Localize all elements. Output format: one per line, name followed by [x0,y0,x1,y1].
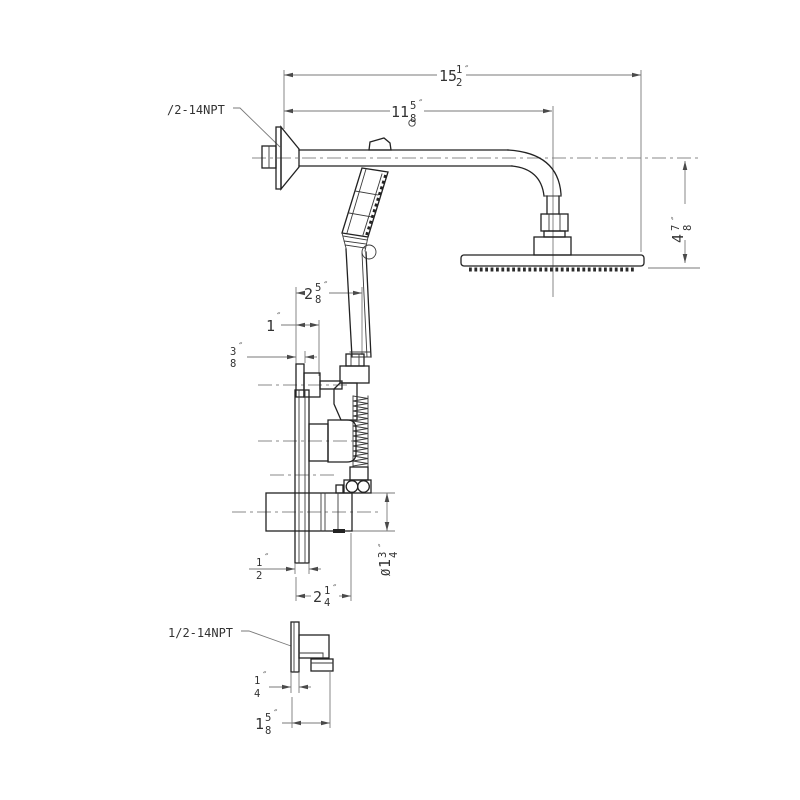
svg-text:4: 4 [388,552,400,558]
svg-text:15: 15 [439,67,457,85]
svg-text:1: 1 [324,585,330,597]
dim-knob-plate: 3 8 ″ [230,342,243,370]
arm-thread-label: /2-14NPT [167,103,225,117]
svg-text:″: ″ [262,671,267,681]
svg-text:1: 1 [456,64,462,76]
valve-wall-plate [295,390,309,563]
technical-drawing: /2-14NPT 1/2-14NPT 15 1 2 ″ 11 5 8 ″ 4 7… [0,0,800,800]
cartridge-sleeve [309,424,328,461]
svg-text:″: ″ [323,281,328,291]
svg-text:″: ″ [264,553,269,563]
leader-arm-thread [233,108,280,147]
annotations: /2-14NPT 1/2-14NPT 15 1 2 ″ 11 5 8 ″ 4 7… [167,64,694,737]
svg-text:8: 8 [265,725,271,737]
diverter-knob-face [296,364,304,397]
svg-text:2: 2 [456,77,462,89]
wall-elbow-detail [291,622,333,672]
svg-text:1: 1 [376,559,394,568]
elbow-outlet-foot [311,659,333,671]
leader-elbow-thread [241,631,291,646]
svg-text:″: ″ [378,543,388,548]
svg-text:″: ″ [332,584,337,594]
wand-handle-left [346,249,352,357]
head-mount [534,237,571,255]
svg-text:″: ″ [276,312,281,322]
svg-text:1: 1 [254,675,260,687]
hose-nut-right [358,481,370,493]
svg-text:7: 7 [670,225,682,231]
svg-text:4: 4 [254,688,260,700]
svg-text:1: 1 [266,317,275,335]
dim-head-drop: 4 7 8 ″ [669,216,694,243]
centerlines [232,106,700,512]
rain-shower-head [461,214,644,270]
svg-text:8: 8 [682,225,694,231]
svg-text:″: ″ [238,342,243,352]
svg-text:8: 8 [410,113,416,125]
hang-loop [362,245,376,259]
wand-cradle [369,138,391,150]
svg-text:8: 8 [230,358,236,370]
svg-text:1: 1 [256,557,262,569]
svg-text:5: 5 [410,100,416,112]
svg-text:2: 2 [313,588,322,606]
dim-valve-projection: 2 1 4 ″ [313,584,337,609]
diverter-body [340,366,369,383]
svg-text:8: 8 [315,294,321,306]
head-disc [461,255,644,266]
svg-text:″: ″ [671,216,681,221]
head-collar [544,231,565,237]
elbow-inner [512,166,544,196]
svg-text:11: 11 [391,103,409,121]
dim-elbow-plate: 1 4 ″ [254,671,267,700]
hose-clip [336,485,343,493]
svg-text:5: 5 [265,712,271,724]
wand-spray-face [367,175,386,235]
svg-text:4: 4 [324,597,330,609]
head-nut [541,214,568,231]
hose-outlet-nut [346,354,364,366]
dim-elbow-projection: 1 5 8 ″ [255,709,278,737]
dimension-lines [233,70,700,728]
elbow-wall-plate [291,622,299,672]
svg-text:″: ″ [273,709,278,719]
hose-end-fitting [350,467,368,480]
wand-handle-right [366,252,371,357]
svg-text:3: 3 [230,346,236,358]
svg-text:″: ″ [464,65,469,75]
hose-nut-left [346,481,358,493]
dim-plate-thickness: 1 2 ″ [256,553,269,582]
dim-arm-length: 11 5 8 ″ [391,99,423,125]
svg-text:4: 4 [669,234,687,243]
dim-valve-bore: Ø 1 3 4 ″ [376,543,400,576]
valve-port-mark [333,529,345,533]
dim-wand-offset: 2 5 8 ″ [304,281,328,306]
svg-text:2: 2 [256,570,262,582]
elbow-body [299,635,329,658]
svg-text:1: 1 [255,715,264,733]
shower-arm [262,127,561,214]
handheld-shower [342,120,415,357]
drawing-canvas: /2-14NPT 1/2-14NPT 15 1 2 ″ 11 5 8 ″ 4 7… [0,0,800,800]
svg-text:″: ″ [418,99,423,109]
dim-knob-projection: 1 ″ [266,312,281,335]
elbow-thread-label: 1/2-14NPT [168,626,233,640]
dim-overall-width: 15 1 2 ″ [439,64,469,89]
svg-text:5: 5 [315,282,321,294]
svg-text:2: 2 [304,285,313,303]
svg-text:Ø: Ø [379,568,393,576]
